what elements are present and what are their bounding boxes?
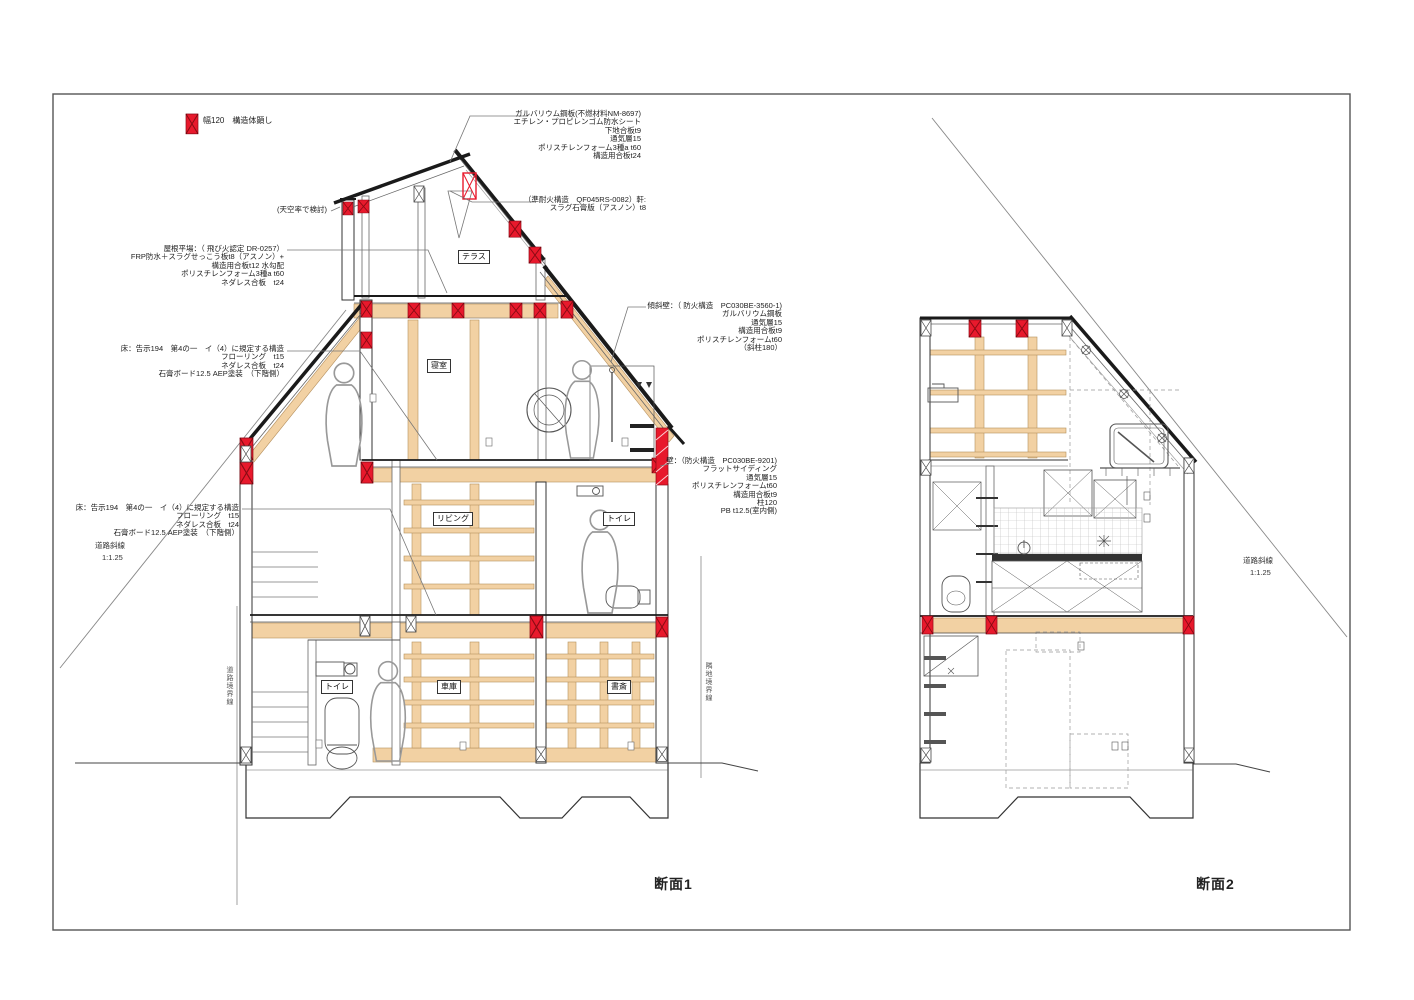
neighbor-boundary-label: 隣地境界線 <box>703 662 713 702</box>
road-slope-label-1: 道路斜線 1:1.25 <box>95 540 125 564</box>
room-label-living: リビング <box>433 512 473 526</box>
section2-foundation <box>920 763 1193 818</box>
road-slope-text: 道路斜線 <box>95 540 125 552</box>
annotation-line: スラグ石膏版（アスノン）t8 <box>524 204 646 212</box>
section1-foundation <box>246 763 668 818</box>
room-label-garage: 車庫 <box>437 680 461 694</box>
sky-factor-note: (天空率で検討) <box>277 206 327 214</box>
lower-floor-annotation: 床：告示194 第4の一 イ（4）に規定する構造 フローリング t15 ネダレス… <box>76 504 239 538</box>
annotation-line: ネダレス合板 t24 <box>131 279 284 287</box>
sloped-wall-annotation: 傾斜壁：（ 防火構造 PC030BE-3560-1) ガルバリウム鋼板 通気層1… <box>647 302 782 352</box>
eave-annotation: （準耐火構造 QF045RS-0082）軒: スラグ石膏版（アスノン）t8 <box>524 196 646 213</box>
section1-title: 断面1 <box>654 874 693 894</box>
room-label-study: 書斎 <box>607 680 631 694</box>
room-label-bedroom: 寝室 <box>427 359 451 373</box>
room-label-terrace: テラス <box>458 250 490 264</box>
drawing-sheet: 幅120 構造体顕し ガルバリウム鋼板(不燃材料NM-8697) エチレン・プロ… <box>0 0 1414 1000</box>
annotation-line: 石膏ボード12.5 AEP塗装 （下階側） <box>121 370 284 378</box>
section2 <box>920 118 1347 818</box>
road-slope-ratio: 1:1.25 <box>95 552 125 564</box>
section1-red-markers <box>240 200 668 638</box>
annotation-line: PB t12.5(室内側) <box>666 507 777 515</box>
room-label-toilet-1f: トイレ <box>321 680 353 694</box>
upper-floor-annotation: 床：告示194 第4の一 イ（4）に規定する構造 フローリング t15 ネダレス… <box>121 345 284 379</box>
road-slope-label-2: 道路斜線 1:1.25 <box>1243 555 1273 579</box>
roof-annotation: ガルバリウム鋼板(不燃材料NM-8697) エチレン・プロピレンゴム防水シート … <box>514 110 642 160</box>
annotation-line: 構造用合板t24 <box>514 152 642 160</box>
road-boundary-label: 道路境界線 <box>224 666 234 706</box>
annotation-line: （斜柱180） <box>647 344 782 352</box>
flat-roof-annotation: 屋根平場：（ 飛び火認定 DR-0257） FRP防水＋スラグせっこう板t8（ア… <box>131 245 284 287</box>
peak-marker <box>463 173 476 199</box>
section2-fixtures <box>924 346 1180 751</box>
annotation-line: (天空率で検討) <box>277 206 327 214</box>
road-slope-ratio: 1:1.25 <box>1243 567 1273 579</box>
annotation-line: 石膏ボード12.5 AEP塗装 （下階側） <box>76 529 239 537</box>
legend-label: 幅120 構造体顕し <box>203 115 272 126</box>
section2-ground <box>1193 764 1270 772</box>
section2-title: 断面2 <box>1196 874 1235 894</box>
wall-annotation: 壁：（防火構造 PC030BE-9201) フラットサイディング 通気層15 ポ… <box>666 457 777 516</box>
legend-swatch <box>186 114 198 134</box>
road-slope-text: 道路斜線 <box>1243 555 1273 567</box>
section1-regulation-lines <box>60 310 701 905</box>
room-label-toilet-2f: トイレ <box>603 512 635 526</box>
